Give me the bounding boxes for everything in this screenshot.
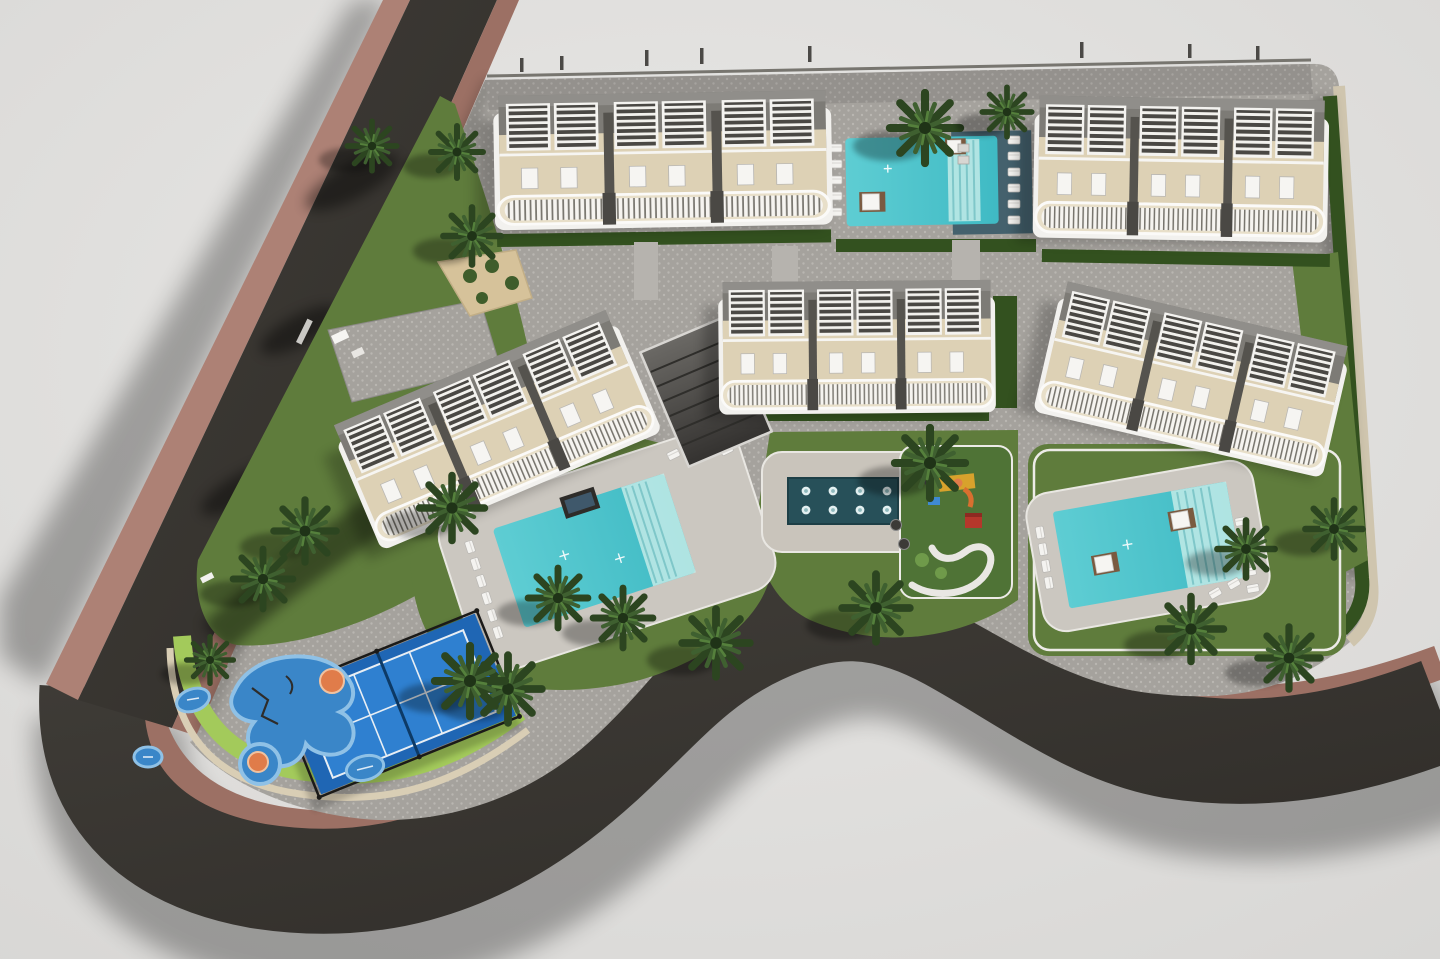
building-2-top-right	[1016, 95, 1329, 246]
site-plan	[0, 0, 1440, 959]
building-1-top-left	[474, 90, 833, 234]
splash-feature	[248, 752, 268, 772]
site-plan-render	[0, 0, 1440, 959]
building-4-mid-centre	[703, 280, 996, 419]
splash-feature	[320, 669, 344, 693]
